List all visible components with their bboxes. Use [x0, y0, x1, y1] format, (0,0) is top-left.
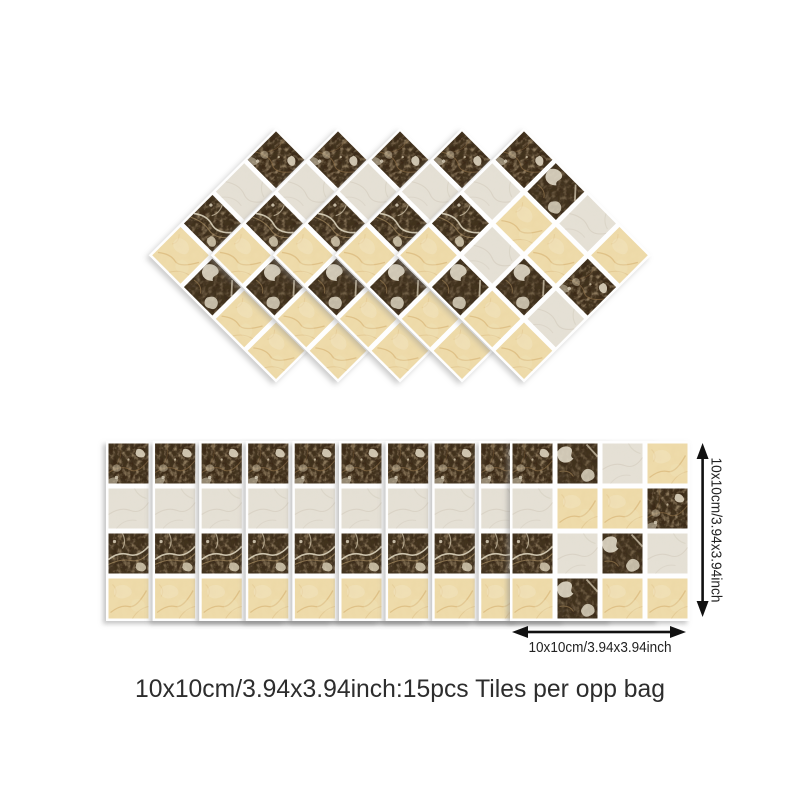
svg-text:10x10cm/3.94x3.94inch: 10x10cm/3.94x3.94inch	[708, 458, 724, 603]
svg-text:10x10cm/3.94x3.94inch: 10x10cm/3.94x3.94inch	[529, 640, 672, 656]
svg-text:10x10cm/3.94x3.94inch:15pcs Ti: 10x10cm/3.94x3.94inch:15pcs Tiles per op…	[135, 676, 665, 703]
